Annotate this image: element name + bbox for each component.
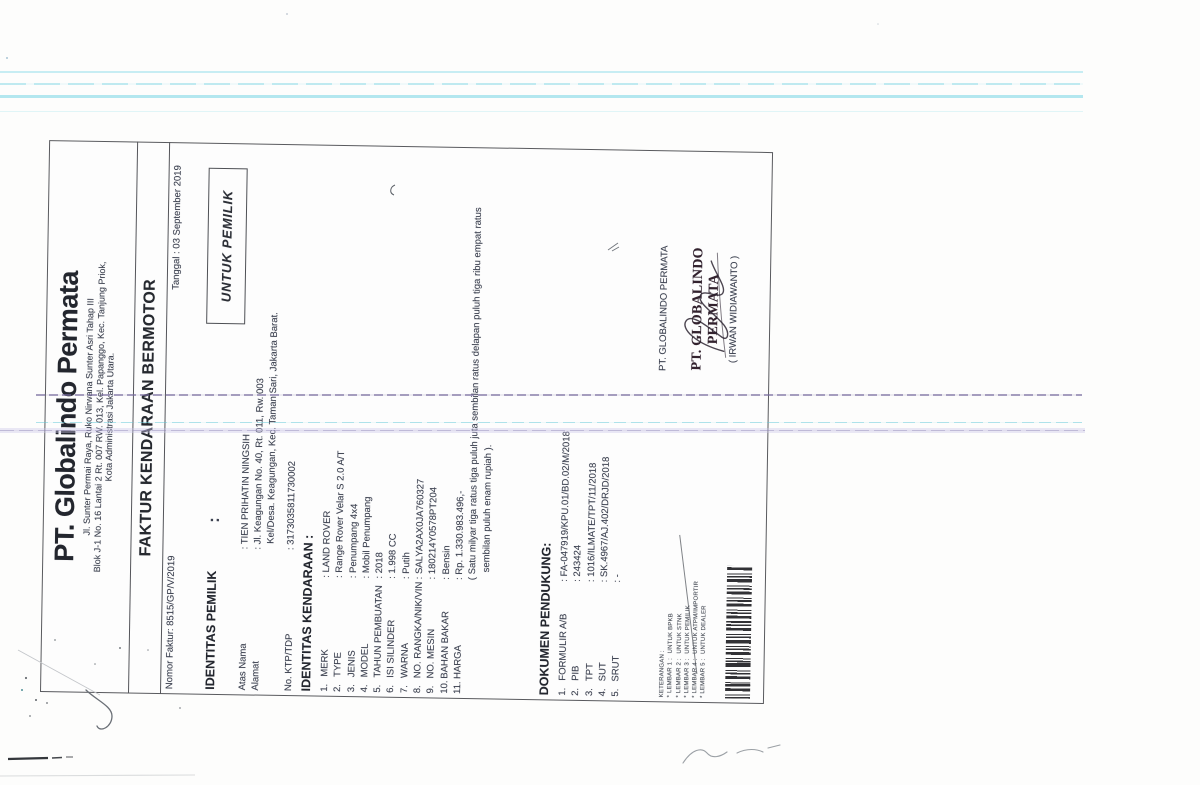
field-value: : 3173035811730002 bbox=[284, 153, 304, 550]
scanner-streak bbox=[0, 111, 1083, 112]
owner-details: Atas Nama : TIEN PRIHATIN NINGSIH Alamat… bbox=[236, 152, 304, 691]
document-title-band: FAKTUR KENDARAAN BERMOTOR bbox=[128, 142, 170, 694]
copy-legend: KETERANGAN : * LEMBAR 1 :UNTUK BPKB * LE… bbox=[658, 580, 710, 698]
vehicle-details: 1.MERK: LAND ROVER 2.TYPE: Range Rover V… bbox=[318, 150, 500, 695]
item-number: 2. bbox=[569, 681, 583, 696]
item-number: 6. bbox=[385, 678, 399, 693]
copy-designation: UNTUK PEMILIK bbox=[218, 190, 235, 302]
field-label bbox=[262, 550, 277, 691]
signature-stamp-name: PT. GLOBALINDO PERMATA bbox=[689, 219, 724, 400]
documents-section-heading: DOKUMEN PENDUKUNG: bbox=[537, 542, 554, 695]
supporting-documents: 1.FORMULIR A/B: FA-047919/KPU.01/BD.02/M… bbox=[556, 154, 631, 697]
item-number: 3. bbox=[583, 681, 597, 696]
scan-background: PT. Globalindo Permata Jl. Sunter Permai… bbox=[0, 0, 1200, 785]
invoice-number: Nomor Faktur: 8515/GP/V/2019 bbox=[164, 555, 177, 689]
item-number: 4. bbox=[596, 681, 610, 696]
invoice-date: Tanggal : 03 September 2019 bbox=[171, 165, 184, 290]
item-number: 1. bbox=[556, 681, 570, 696]
item-number: 11. bbox=[451, 679, 465, 694]
item-number: 1. bbox=[318, 677, 332, 692]
letterhead: PT. Globalindo Permata Jl. Sunter Permai… bbox=[47, 141, 120, 692]
barcode bbox=[725, 565, 752, 698]
field-label: HARGA bbox=[451, 580, 466, 679]
invoice-document: PT. Globalindo Permata Jl. Sunter Permai… bbox=[40, 140, 773, 704]
scanner-streak bbox=[0, 95, 1083, 98]
keterangan-item: * LEMBAR 5 :UNTUK DEALER bbox=[699, 581, 709, 698]
vehicle-section-heading: IDENTITAS KENDARAAN : bbox=[299, 535, 316, 692]
scanner-streak bbox=[0, 83, 1083, 85]
item-number: 8. bbox=[411, 678, 425, 693]
field-label: No. KTP/TDP bbox=[282, 550, 297, 691]
item-number: 3. bbox=[345, 677, 359, 692]
signer-name: ( IRWAN WIDIAWANTO ) bbox=[727, 219, 741, 399]
item-number: 7. bbox=[398, 678, 412, 693]
signature-company: PT. GLOBALINDO PERMATA bbox=[657, 218, 671, 398]
field-label: SRUT bbox=[609, 582, 624, 681]
item-number: 10. bbox=[438, 679, 452, 694]
item-number: 4. bbox=[358, 677, 372, 692]
document-title: FAKTUR KENDARAAN BERMOTOR bbox=[137, 279, 159, 557]
field-label: * LEMBAR 5 : bbox=[699, 654, 708, 698]
item-number: 5. bbox=[371, 677, 385, 692]
item-number: 5. bbox=[609, 681, 623, 696]
item-number: 9. bbox=[424, 678, 438, 693]
item-number: 2. bbox=[331, 677, 345, 692]
copy-designation-box: UNTUK PEMILIK bbox=[206, 168, 248, 325]
scanner-streak bbox=[0, 71, 1083, 73]
field-value: UNTUK DEALER bbox=[700, 581, 710, 654]
signature-block: PT. GLOBALINDO PERMATA PT. GLOBALINDO PE… bbox=[657, 218, 741, 399]
owner-section-heading: IDENTITAS PEMILIK : bbox=[203, 517, 224, 690]
